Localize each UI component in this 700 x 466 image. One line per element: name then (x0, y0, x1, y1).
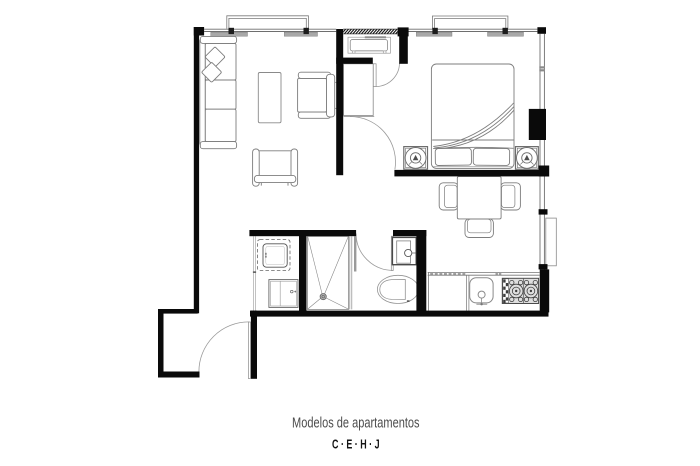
svg-text:C · E · H · J: C · E · H · J (332, 437, 380, 452)
svg-text:Modelos de apartamentos: Modelos de apartamentos (292, 416, 420, 432)
